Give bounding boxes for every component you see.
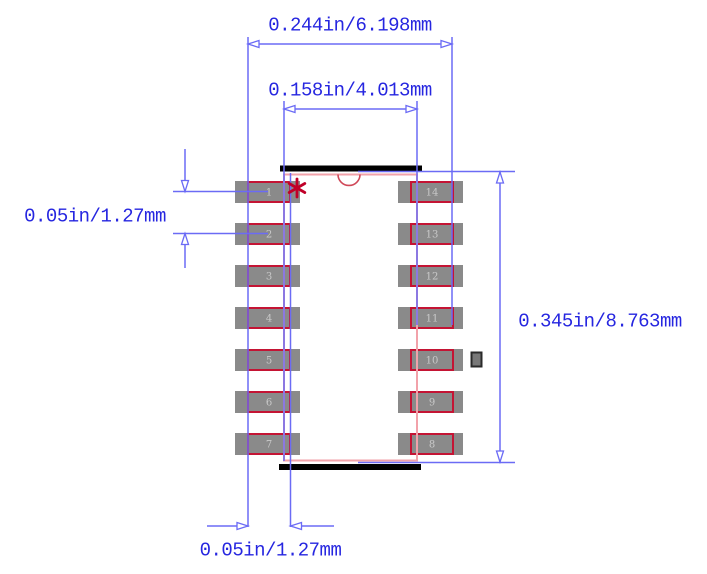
dim-label-overall-width: 0.244in/6.198mm: [268, 15, 432, 37]
pad-number: 4: [266, 314, 272, 325]
arrow-left-icon: [284, 106, 295, 113]
silkscreen-bar-top: [280, 166, 422, 172]
dim-label-body-width: 0.158in/4.013mm: [268, 80, 432, 102]
pad-number: 7: [266, 440, 272, 451]
arrow-right-icon: [441, 41, 452, 48]
dimension-labels: 0.244in/6.198mm 0.158in/4.013mm 0.05in/1…: [24, 15, 682, 562]
footprint-drawing-canvas: 1 2 3 4 5 6 7 14 13 12 11 10 9 8 0.244in…: [0, 0, 707, 574]
dim-label-pad-length: 0.05in/1.27mm: [200, 540, 342, 562]
pad-number: 6: [266, 398, 272, 409]
pin1-notch-icon: [338, 175, 360, 186]
pad-number: 5: [266, 356, 272, 367]
arrow-left-icon: [291, 523, 302, 530]
arrow-right-icon: [237, 523, 248, 530]
pad-number: 3: [266, 272, 272, 283]
arrow-up-icon: [182, 234, 189, 245]
pad-number: 11: [426, 314, 439, 325]
pad-number: 2: [266, 230, 272, 241]
package-body-outline: [284, 175, 417, 461]
pad-number: 10: [426, 356, 439, 367]
origin-marker-icon: [472, 353, 482, 367]
pad-number: 12: [426, 272, 439, 283]
arrow-down-icon: [182, 181, 189, 192]
pad-number: 1: [266, 188, 272, 199]
dim-label-overall-height: 0.345in/8.763mm: [518, 311, 682, 333]
arrow-up-icon: [497, 172, 504, 183]
pad-number: 9: [429, 398, 435, 409]
arrow-down-icon: [497, 451, 504, 462]
dim-label-pad-pitch: 0.05in/1.27mm: [24, 206, 166, 228]
pad-number: 14: [426, 188, 439, 199]
arrow-left-icon: [248, 41, 259, 48]
dimension-lines: [173, 37, 515, 530]
footprint-drawing: 1 2 3 4 5 6 7 14 13 12 11 10 9 8 0.244in…: [0, 0, 707, 574]
silkscreen-bar-bottom: [279, 464, 421, 470]
arrow-right-icon: [406, 106, 417, 113]
pad-number: 13: [426, 230, 439, 241]
pad-number: 8: [429, 440, 435, 451]
